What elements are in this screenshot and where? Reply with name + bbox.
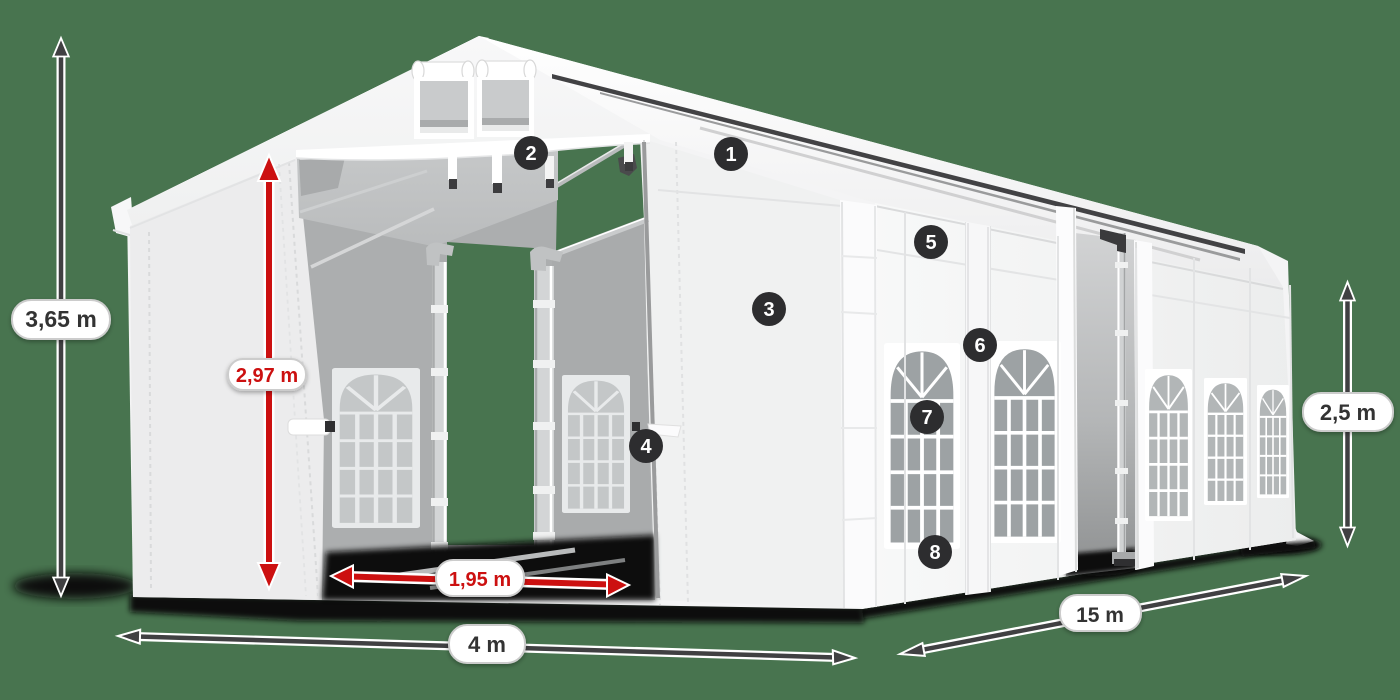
- svg-text:2,5 m: 2,5 m: [1320, 400, 1376, 425]
- svg-text:7: 7: [921, 407, 932, 429]
- svg-text:8: 8: [929, 542, 940, 564]
- svg-text:6: 6: [974, 335, 985, 357]
- svg-text:3: 3: [763, 299, 774, 321]
- svg-text:1: 1: [725, 144, 736, 166]
- svg-text:2: 2: [525, 143, 536, 165]
- svg-text:2,97 m: 2,97 m: [236, 365, 298, 387]
- svg-text:4 m: 4 m: [468, 632, 506, 657]
- svg-text:5: 5: [925, 232, 936, 254]
- svg-text:4: 4: [640, 436, 652, 458]
- svg-text:15 m: 15 m: [1076, 604, 1124, 627]
- svg-text:1,95 m: 1,95 m: [449, 569, 511, 591]
- svg-text:3,65 m: 3,65 m: [25, 306, 97, 332]
